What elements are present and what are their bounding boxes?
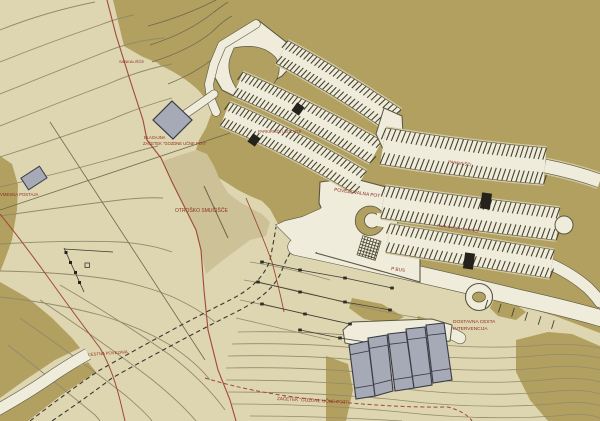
svg-text:BLAGAJNA: BLAGAJNA [144,135,166,140]
svg-text:SANKALIŠČE: SANKALIŠČE [119,59,144,64]
svg-text:ZAČETEK "GOZDNE UČNE POTI": ZAČETEK "GOZDNE UČNE POTI" [143,141,207,146]
svg-text:OTROŠKO SMUČIŠČE: OTROŠKO SMUČIŠČE [175,207,228,214]
svg-text:PARKIRIŠČI / ŠOLARJI: PARKIRIŠČI / ŠOLARJI [258,129,301,134]
svg-text:DOSTAVNA CESTA: DOSTAVNA CESTA [453,319,496,325]
svg-text:INTERVENCIJA: INTERVENCIJA [453,326,488,332]
svg-text:VMESNA POSTAJA: VMESNA POSTAJA [0,192,38,197]
